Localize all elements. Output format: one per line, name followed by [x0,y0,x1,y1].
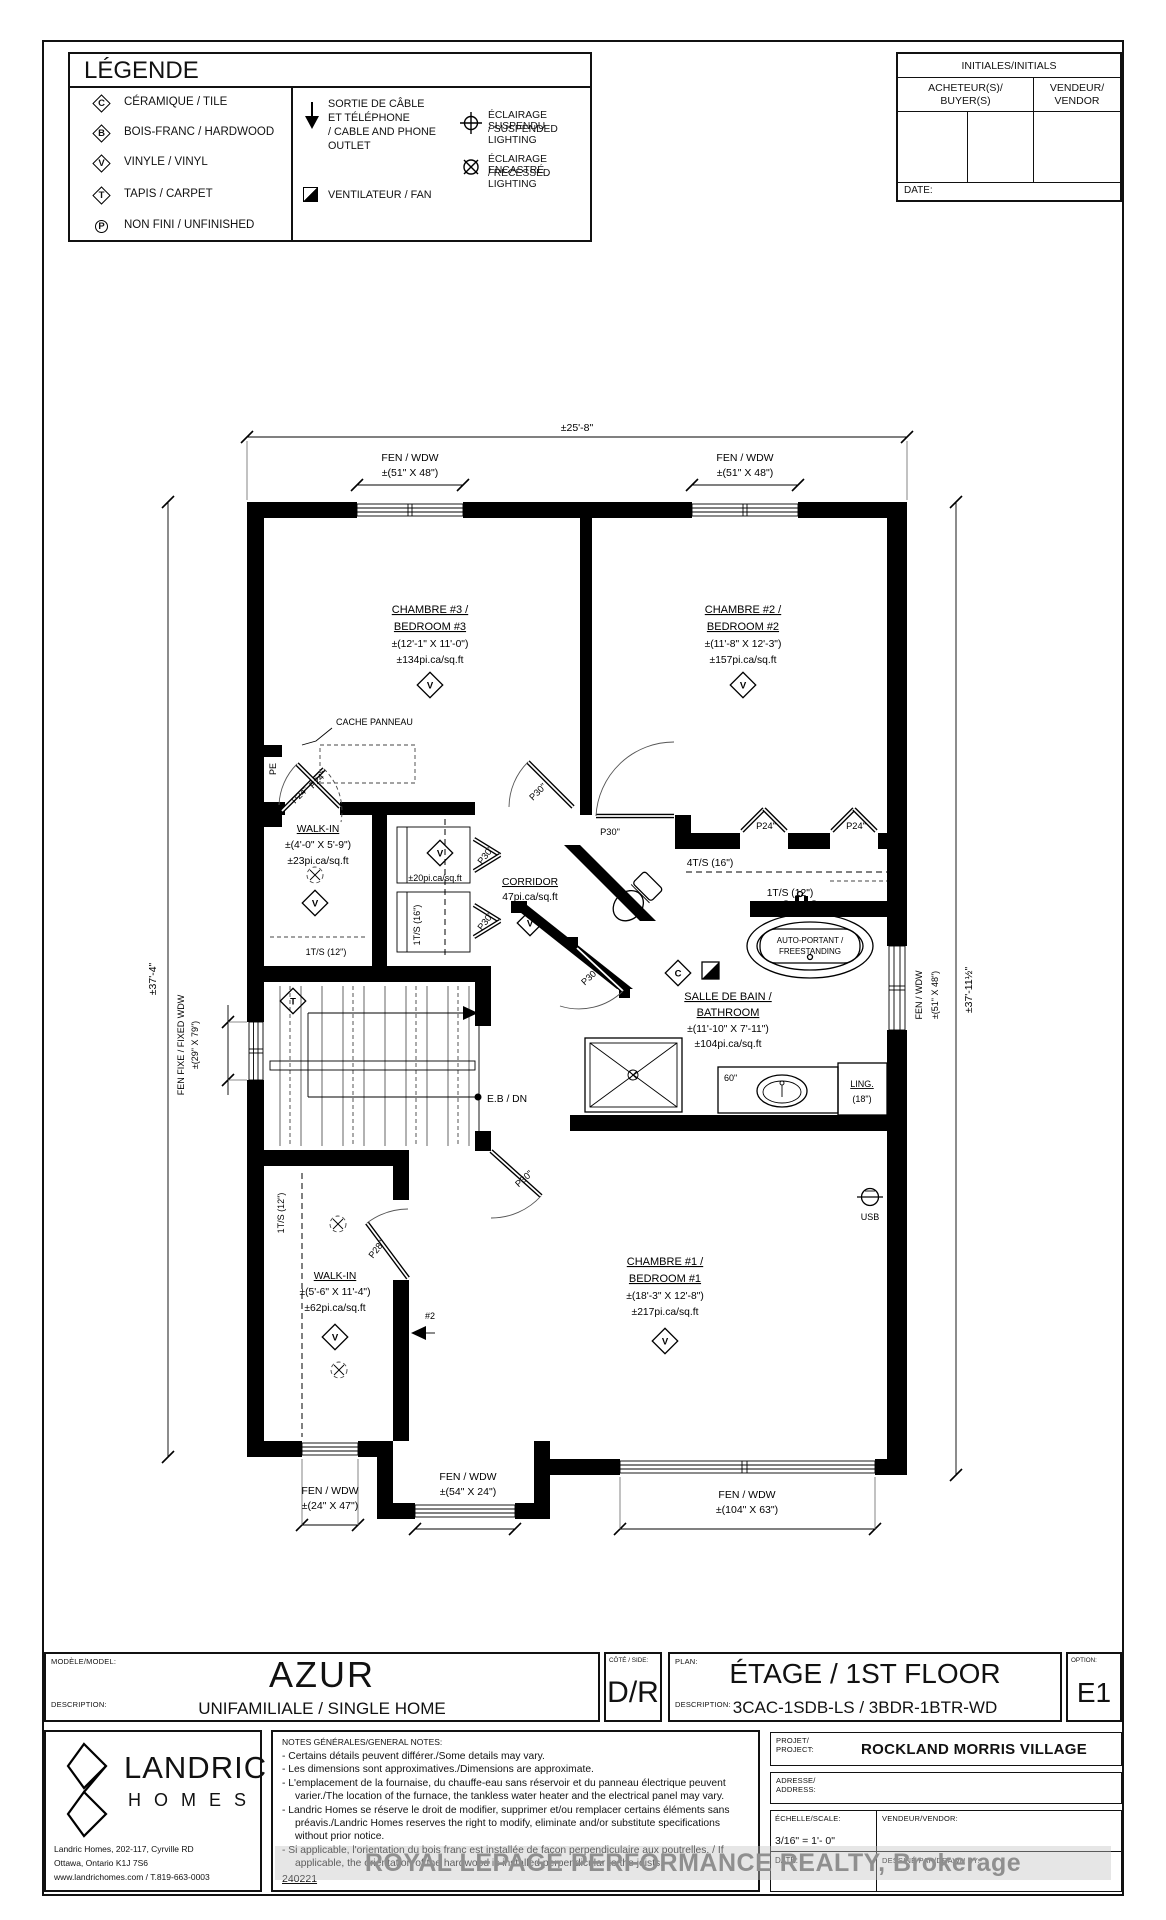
unfinished-icon: P [92,217,111,236]
legend-box: LÉGENDE C CÉRAMIQUE / TILE B BOIS-FRANC … [68,52,592,242]
svg-text:(18"): (18") [852,1094,871,1104]
vendor-label: VENDEUR/VENDOR: [882,1814,958,1823]
svg-text:47pi.ca/sq.ft: 47pi.ca/sq.ft [502,892,558,903]
buyer-header-cell: ACHETEUR(S)/BUYER(S) [898,78,1034,111]
svg-text:C: C [675,969,682,980]
legend-item-label: CÉRAMIQUE / TILE [124,96,227,108]
side-box: CÔTÉ / SIDE: D/R [604,1652,662,1722]
svg-text:±20pi.ca/sq.ft: ±20pi.ca/sq.ft [408,873,462,883]
vanity-sink: 60" [718,1067,838,1113]
svg-text:FEN / WDW: FEN / WDW [718,1489,775,1501]
svg-text:±62pi.ca/sq.ft: ±62pi.ca/sq.ft [304,1303,365,1314]
svg-text:P30": P30" [476,844,496,866]
svg-text:1T/S (12"): 1T/S (12") [767,888,814,899]
svg-text:CHAMBRE #1 /: CHAMBRE #1 / [627,1256,704,1268]
window-top-1 [357,504,463,516]
svg-text:±25'-8": ±25'-8" [561,422,594,434]
svg-text:1T/S (16"): 1T/S (16") [412,905,422,946]
option-box: OPTION: E1 [1066,1652,1122,1722]
note-item: - Les dimensions sont approximatives./Di… [282,1763,749,1776]
door-walkin1: P24" [279,764,340,807]
legend-outlet-line4: OUTLET [328,140,371,152]
plan-description: 3CAC-1SDB-LS / 3BDR-1BTR-WD [670,1694,1060,1722]
svg-text:BATHROOM: BATHROOM [697,1007,760,1019]
svg-text:V: V [527,919,534,930]
svg-text:±(12'-1" X 11'-0"): ±(12'-1" X 11'-0") [392,639,469,650]
door-corridor-closet-1: P30" [474,839,500,871]
recessed-light-walkin2-a [330,1216,346,1232]
electrical-panel-area: CACHE PANNEAU PE [268,717,415,783]
option-label: OPTION: [1071,1657,1097,1664]
side-value: D/R [606,1668,660,1718]
svg-text:±37'-4": ±37'-4" [147,962,159,995]
plan-name: ÉTAGE / 1ST FLOOR [670,1655,1060,1693]
project-box: PROJET/PROJECT: ROCKLAND MORRIS VILLAGE [770,1732,1122,1766]
svg-text:±(18'-3" X 12'-8"): ±(18'-3" X 12'-8") [626,1291,704,1302]
legend-title: LÉGENDE [84,57,199,85]
svg-text:V: V [312,899,319,910]
address-line-1: Landric Homes, 202-117, Cyrville RD [54,1844,194,1854]
project-label: PROJET/PROJECT: [776,1737,814,1754]
door-bedroom2: P30" [596,742,674,837]
svg-text:±(11'-8" X 12'-3"): ±(11'-8" X 12'-3") [705,639,782,650]
window-right [889,946,905,1030]
buyer-initial-cell-2 [968,112,1034,182]
linen-closet: LING. (18") [838,1063,887,1115]
svg-text:±(51" X 48"): ±(51" X 48") [382,467,438,479]
window-left-fixed [249,1022,263,1080]
svg-text:CACHE PANNEAU: CACHE PANNEAU [336,717,413,727]
svg-text:FREESTANDING: FREESTANDING [779,947,841,956]
window-top-2 [692,504,798,516]
svg-text:PE: PE [268,763,278,775]
carpet-symbol-stairs: T [280,988,305,1013]
svg-text:±(104" X 63"): ±(104" X 63") [716,1504,778,1516]
bathroom-shelves: 4T/S (16") 1T/S (12") [686,858,887,899]
recessed-light-icon [460,156,482,178]
vinyl-symbol-bedroom2: V [730,672,755,697]
svg-text:P30": P30" [527,781,548,802]
svg-text:±(54" X 24"): ±(54" X 24") [440,1486,496,1498]
cable-outlet-bedroom1: #2 [411,1311,435,1340]
recessed-light-walkin2-b [331,1362,347,1378]
address-line-3: www.landrichomes.com / T.819-663-0003 [54,1872,210,1882]
logo-box: LANDRIC H O M E S Landric Homes, 202-117… [44,1730,262,1892]
svg-text:CHAMBRE #3 /: CHAMBRE #3 / [392,604,469,616]
legend-item-label: TAPIS / CARPET [124,188,213,200]
note-item: - Certains détails peuvent différer./Som… [282,1750,749,1763]
svg-text:FEN / WDW: FEN / WDW [301,1485,358,1497]
svg-text:WALK-IN: WALK-IN [314,1271,357,1282]
door-corridor-closet-2: P30" [474,905,500,937]
svg-text:E.B / DN: E.B / DN [487,1094,527,1105]
svg-text:AUTO-PORTANT /: AUTO-PORTANT / [777,936,844,945]
initials-blank-row [898,112,1120,183]
doors: P30" P30" P30" P24" P24" [279,742,876,1278]
brand-name: LANDRIC [124,1750,267,1786]
window-bottom-large [620,1461,875,1473]
toilet [607,871,663,927]
svg-text:FEN / WDW: FEN / WDW [716,452,773,464]
walls [247,502,907,1519]
legend-item-label: VINYLE / VINYL [124,156,208,168]
svg-text:USB: USB [861,1212,880,1222]
address-line-2: Ottawa, Ontario K1J 7S6 [54,1858,148,1868]
svg-text:FEN FIXE / FIXED WDW: FEN FIXE / FIXED WDW [176,994,186,1095]
vinyl-symbol-bedroom3: V [417,672,442,697]
model-box: MODÈLE/MODEL: AZUR DESCRIPTION: UNIFAMIL… [44,1652,600,1722]
svg-text:±(11'-10" X 7'-11"): ±(11'-10" X 7'-11") [687,1024,769,1035]
svg-text:T: T [290,997,296,1008]
svg-text:±37'-11½": ±37'-11½" [963,967,975,1014]
initials-header: INITIALES/INITIALS [898,54,1120,78]
svg-text:#2: #2 [425,1311,435,1321]
svg-text:BEDROOM #1: BEDROOM #1 [629,1273,701,1285]
svg-text:V: V [740,681,747,692]
svg-text:60": 60" [724,1073,737,1083]
door-bedroom1: P30" [491,1151,541,1218]
project-name: ROCKLAND MORRIS VILLAGE [827,1733,1121,1765]
svg-text:±104pi.ca/sq.ft: ±104pi.ca/sq.ft [695,1039,762,1050]
svg-text:±(24" X 47"): ±(24" X 47") [302,1500,358,1512]
window-bottom-bump [415,1505,515,1517]
door-bedroom3: P30" [509,762,573,807]
svg-text:V: V [662,1337,669,1348]
svg-text:FEN / WDW: FEN / WDW [439,1471,496,1483]
model-name: AZUR [46,1654,598,1696]
linen-shelves: ±20pi.ca/sq.ft 1T/S (16") [397,819,470,957]
date-label: DATE: [904,185,933,196]
watermark: ROYAL LEPAGE PERFORMANCE REALTY, Brokera… [275,1846,1111,1880]
svg-text:±134pi.ca/sq.ft: ±134pi.ca/sq.ft [397,655,464,666]
hardwood-icon: B [92,124,111,143]
vendor-initial-cell [1034,112,1120,182]
svg-text:P30": P30" [600,827,620,837]
vinyl-symbol-bedroom1: V [652,1328,677,1353]
legend-fan-label: VENTILATEUR / FAN [328,189,432,201]
vinyl-symbol-walkin1: V [302,890,327,915]
svg-text:1T/S (12"): 1T/S (12") [276,1193,286,1234]
svg-text:CORRIDOR: CORRIDOR [502,877,558,888]
vendor-header-cell: VENDEUR/VENDOR [1034,78,1120,111]
svg-text:±(51" X 48"): ±(51" X 48") [930,971,940,1019]
legend-title-row: LÉGENDE [70,54,590,88]
legend-outlet-line2: ET TÉLÉPHONE [328,112,410,124]
notes-title: NOTES GÉNÉRALES/GENERAL NOTES: [282,1737,749,1747]
svg-text:CHAMBRE #2 /: CHAMBRE #2 / [705,604,782,616]
model-description: UNIFAMILIALE / SINGLE HOME [46,1696,598,1722]
plan-box: PLAN: ÉTAGE / 1ST FLOOR DESCRIPTION: 3CA… [668,1652,1062,1722]
vinyl-symbol-linen: V [427,840,452,865]
note-item: - L'emplacement de la fournaise, du chau… [282,1777,749,1804]
svg-text:P24": P24" [846,821,866,831]
suspended-light-icon [460,112,482,134]
fan-symbol-bathroom [702,962,719,979]
legend-outlet-line1: SORTIE DE CÂBLE [328,98,424,110]
address-label: ADRESSE/ADDRESS: [776,1777,816,1794]
svg-text:FEN / WDW: FEN / WDW [381,452,438,464]
vinyl-icon: V [92,154,111,173]
usb-outlet: USB [857,1189,883,1223]
note-item: - Landric Homes se réserve le droit de m… [282,1804,749,1844]
initials-table: INITIALES/INITIALS ACHETEUR(S)/BUYER(S) … [896,52,1122,202]
recessed-light-walkin1 [307,867,323,883]
svg-text:±217pi.ca/sq.ft: ±217pi.ca/sq.ft [632,1307,699,1318]
shower [585,1038,682,1112]
svg-text:±(5'-6" X 11'-4"): ±(5'-6" X 11'-4") [299,1287,370,1298]
svg-text:BEDROOM #2: BEDROOM #2 [707,621,779,633]
date-row: DATE: [898,183,1120,200]
ceramic-tile-icon: C [92,94,111,113]
floor-plan: ±25'-8" FEN / WDW ±(51" X 48") FEN / WDW… [130,345,990,1635]
svg-text:±(51" X 48"): ±(51" X 48") [717,467,773,479]
legend-item-label: NON FINI / UNFINISHED [124,219,254,231]
svg-text:LING.: LING. [850,1079,874,1089]
option-value: E1 [1068,1668,1120,1718]
landric-logo-icon [56,1742,118,1838]
door-bathroom-closet-1: P24" [742,809,786,831]
svg-text:1T/S (12"): 1T/S (12") [306,947,347,957]
svg-text:V: V [332,1333,339,1344]
svg-text:4T/S (16"): 4T/S (16") [687,858,734,869]
initials-subheader-row: ACHETEUR(S)/BUYER(S) VENDEUR/VENDOR [898,78,1120,112]
svg-text:P30": P30" [476,910,496,932]
legend-divider [291,88,293,242]
windows [249,504,905,1517]
door-walkin2: P28" [367,1209,408,1278]
door-bathroom-closet-2: P24" [832,809,876,831]
fan-icon [303,187,318,202]
brand-sub: H O M E S [128,1790,250,1811]
svg-text:±23pi.ca/sq.ft: ±23pi.ca/sq.ft [287,856,348,867]
vinyl-symbol-walkin2: V [322,1324,347,1349]
svg-text:±157pi.ca/sq.ft: ±157pi.ca/sq.ft [710,655,777,666]
svg-text:V: V [437,849,444,860]
svg-text:±(29" X 79"): ±(29" X 79") [190,1021,200,1069]
svg-text:V: V [427,681,434,692]
window-bottom-small [302,1443,358,1455]
scale-label: ÉCHELLE/SCALE: [775,1814,841,1823]
legend-suspended-line2: / SUSPENDED LIGHTING [488,124,590,146]
svg-text:FEN / WDW: FEN / WDW [914,970,924,1019]
legend-item-label: BOIS-FRANC / HARDWOOD [124,126,274,138]
address-box: ADRESSE/ADDRESS: [770,1772,1122,1804]
carpet-icon: T [92,186,111,205]
svg-text:SALLE DE BAIN /: SALLE DE BAIN / [684,991,772,1003]
side-label: CÔTÉ / SIDE: [609,1657,648,1664]
legend-outlet-line3: / CABLE AND PHONE [328,126,436,138]
svg-text:±(4'-0" X 5'-9"): ±(4'-0" X 5'-9") [285,840,351,851]
floor-plan-sheet: LÉGENDE C CÉRAMIQUE / TILE B BOIS-FRANC … [0,0,1166,1920]
legend-recessed-line2: / RECESSED LIGHTING [488,168,590,190]
stairs-direction-arrow: E.B / DN [308,1006,527,1105]
buyer-initial-cell-1 [898,112,968,182]
svg-text:BEDROOM #3: BEDROOM #3 [394,621,466,633]
room-labels: CHAMBRE #3 / BEDROOM #3 ±(12'-1" X 11'-0… [270,604,782,1437]
svg-text:WALK-IN: WALK-IN [297,824,340,835]
cable-outlet-icon [302,102,322,130]
ceramic-symbol-bathroom: C [665,960,690,985]
svg-text:P24": P24" [756,821,776,831]
